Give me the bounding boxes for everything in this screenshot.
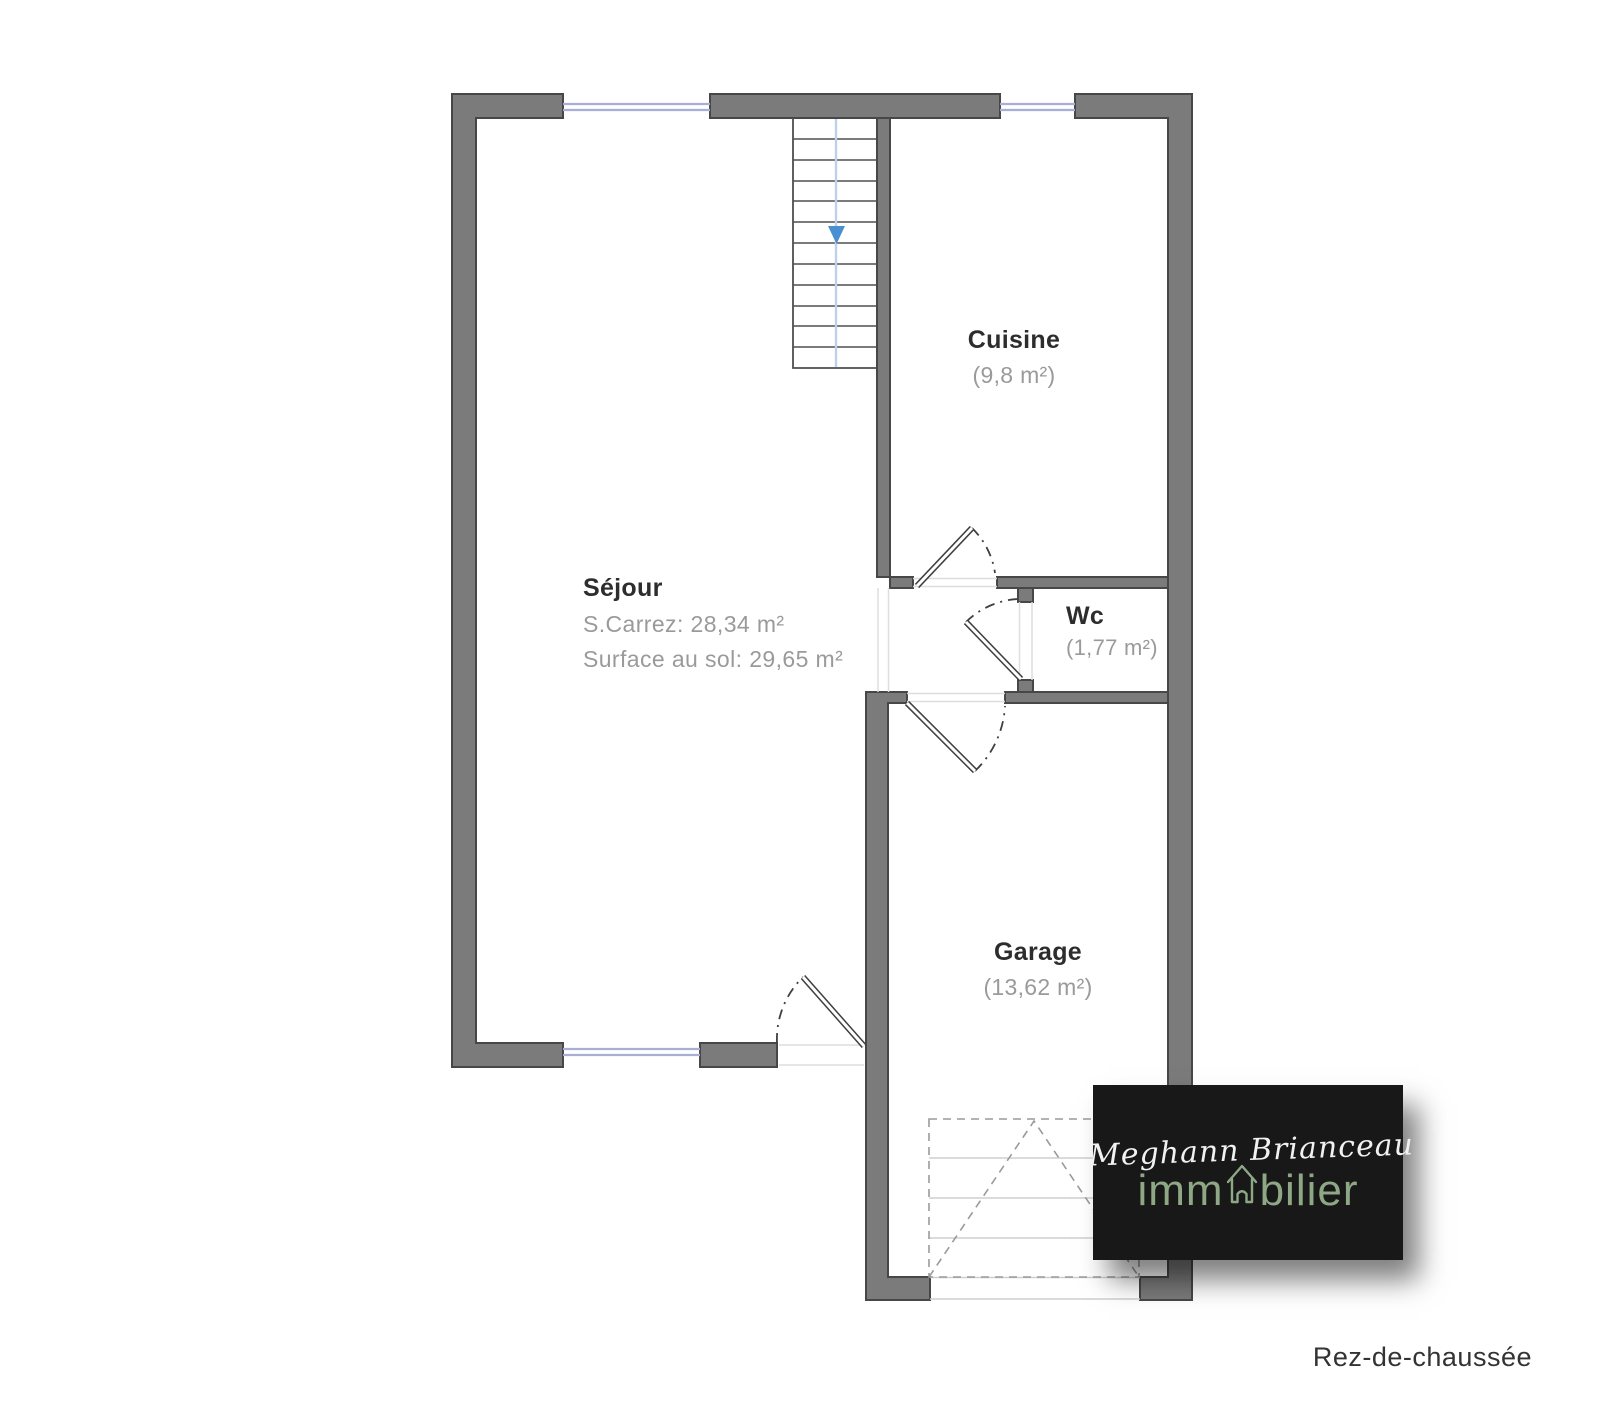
agency-name-script: Meghann Brianceau xyxy=(1088,1127,1414,1173)
floor-caption: Rez-de-chaussée xyxy=(1313,1342,1532,1373)
wall-wc-stub-top xyxy=(1018,588,1033,602)
wall-top-middle xyxy=(710,94,1000,118)
floorplan-page: { "colors": { "wall-fill": "#7b7b7b", "w… xyxy=(0,0,1600,1402)
door-kitchen xyxy=(917,528,995,586)
wall-left-and-corners xyxy=(452,94,563,1067)
wc-name: Wc xyxy=(1066,602,1158,631)
wall-garage-left xyxy=(866,692,930,1300)
wall-wc-top xyxy=(997,577,1168,588)
wall-bottom-sejour xyxy=(700,1043,777,1067)
garage-area: (13,62 m²) xyxy=(983,974,1092,1001)
window-bottom xyxy=(563,1049,700,1055)
door-entry xyxy=(777,977,864,1046)
sejour-floor-area: Surface au sol: 29,65 m² xyxy=(583,646,843,673)
cuisine-label: Cuisine (9,8 m²) xyxy=(968,326,1060,389)
stair-direction-arrow-icon xyxy=(828,226,845,244)
agency-word-suffix: bilier xyxy=(1260,1169,1359,1213)
house-icon xyxy=(1225,1162,1259,1212)
wall-stair-kitchen-divider xyxy=(877,118,890,577)
cuisine-area: (9,8 m²) xyxy=(968,362,1060,389)
sejour-label: Séjour S.Carrez: 28,34 m² Surface au sol… xyxy=(583,574,843,673)
wc-label: Wc (1,77 m²) xyxy=(1066,602,1158,661)
staircase xyxy=(793,118,877,368)
wc-area: (1,77 m²) xyxy=(1066,635,1158,661)
agency-word-prefix: imm xyxy=(1137,1169,1223,1213)
cuisine-name: Cuisine xyxy=(968,326,1060,355)
wall-garage-top xyxy=(1005,692,1168,703)
window-top-right xyxy=(1000,104,1075,110)
sejour-name: Séjour xyxy=(583,574,843,603)
door-garage-hall xyxy=(907,703,1005,771)
door-wc xyxy=(966,599,1021,679)
window-top-left xyxy=(563,104,710,110)
wall-kitchen-door-stub xyxy=(890,577,913,588)
agency-logo: Meghann Brianceau imm bilier xyxy=(1093,1085,1403,1260)
sejour-carrez-area: S.Carrez: 28,34 m² xyxy=(583,611,843,638)
garage-name: Garage xyxy=(983,938,1092,967)
garage-label: Garage (13,62 m²) xyxy=(983,938,1092,1001)
